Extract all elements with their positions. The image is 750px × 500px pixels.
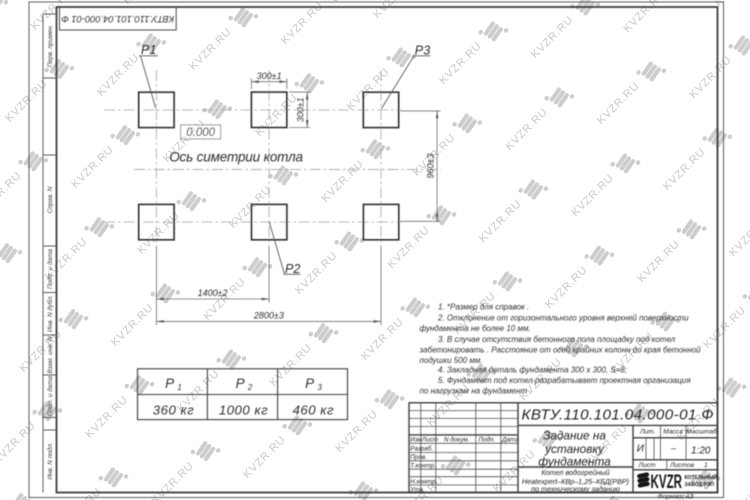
svg-text:5. Фундамент под котел разраб: 5. Фундамент под котел разрабатывает про…	[438, 376, 691, 385]
svg-text:–: –	[671, 443, 676, 453]
svg-text:фундамента: фундамента	[538, 454, 611, 468]
svg-text:ЗАВОД РЭП: ЗАВОД РЭП	[685, 482, 715, 488]
svg-text:2800±3: 2800±3	[253, 310, 284, 320]
svg-text:Лист: Лист	[638, 462, 656, 469]
svg-text:Лит.: Лит.	[639, 429, 656, 436]
svg-text:Изм: Изм	[410, 436, 422, 443]
svg-text:Справ. N: Справ. N	[47, 186, 54, 213]
svg-text:подушки 500 мм.: подушки 500 мм.	[420, 356, 483, 365]
svg-text:Подп. и дата: Подп. и дата	[46, 249, 54, 289]
svg-text:P1: P1	[141, 43, 156, 57]
svg-text:Н.контр.: Н.контр.	[410, 479, 437, 486]
svg-text:Формат А3: Формат А3	[657, 494, 693, 500]
svg-text:И: И	[637, 444, 645, 455]
svg-text:фундамента не более 10 мм.: фундамента не более 10 мм.	[420, 324, 531, 333]
svg-text:КВТУ.110.101.04.000-01 Ф: КВТУ.110.101.04.000-01 Ф	[522, 407, 714, 424]
svg-text:Ось симетрии котла: Ось симетрии котла	[169, 149, 303, 164]
svg-text:1: 1	[704, 462, 708, 469]
svg-text:забетонировать . Расстояние от: забетонировать . Расстояние от осей край…	[419, 345, 702, 354]
svg-text:Инв. N дубл.: Инв. N дубл.	[46, 295, 54, 332]
svg-text:Перв. примен.: Перв. примен.	[47, 25, 54, 67]
svg-text:КОТЕЛЬНЫЙ: КОТЕЛЬНЫЙ	[685, 473, 718, 481]
svg-text:300±1: 300±1	[257, 71, 282, 81]
svg-text:по техническому заданию: по техническому заданию	[531, 485, 620, 494]
svg-text:Задание на: Задание на	[543, 428, 606, 442]
svg-text:1400±2: 1400±2	[198, 288, 228, 298]
svg-text:960±3: 960±3	[425, 154, 435, 179]
svg-text:3. В случае отсутствия бетонн: 3. В случае отсутствия бетонного пола пл…	[438, 335, 676, 344]
svg-text:по нагрузкам на фундамент .: по нагрузкам на фундамент .	[420, 387, 532, 396]
svg-text:300±1: 300±1	[296, 97, 306, 122]
svg-text:0.000: 0.000	[186, 127, 215, 139]
svg-text:Дата: Дата	[501, 436, 519, 443]
svg-text:Масса: Масса	[663, 429, 683, 436]
svg-text:Утв.: Утв.	[409, 486, 424, 493]
svg-text:Взам. инв. N: Взам. инв. N	[47, 336, 54, 374]
svg-text:КВТУ.110.101.04.000-01 Ф: КВТУ.110.101.04.000-01 Ф	[61, 14, 174, 25]
svg-text:Листов: Листов	[669, 462, 695, 469]
svg-text:Котел водогрейный: Котел водогрейный	[541, 468, 609, 477]
svg-text:Инв. N подл.: Инв. N подл.	[46, 442, 54, 479]
svg-text:360 кг: 360 кг	[153, 403, 194, 418]
svg-text:Подп. и дата: Подп. и дата	[46, 376, 54, 416]
svg-text:Пров.: Пров.	[410, 454, 427, 461]
svg-text:460 кг: 460 кг	[293, 403, 334, 418]
svg-text:4. Закладная деталь фундамент: 4. Закладная деталь фундамента 300 x 300…	[438, 365, 627, 374]
svg-text:KVZR: KVZR	[651, 472, 683, 493]
svg-text:Лист: Лист	[421, 436, 438, 443]
svg-text:Разраб.: Разраб.	[410, 445, 433, 453]
svg-text:Подп.: Подп.	[479, 435, 496, 443]
svg-text:2. Отклонение от горизонтальн: 2. Отклонение от горизонтального уровня …	[437, 314, 689, 323]
svg-text:Масштаб: Масштаб	[686, 428, 717, 436]
svg-text:N докум.: N докум.	[444, 435, 469, 443]
svg-text:1000 кг: 1000 кг	[219, 403, 268, 418]
svg-text:Т.контр.: Т.контр.	[410, 463, 435, 470]
svg-text:1. *Размер для справок .: 1. *Размер для справок .	[438, 303, 529, 312]
svg-text:1:20: 1:20	[691, 446, 711, 457]
